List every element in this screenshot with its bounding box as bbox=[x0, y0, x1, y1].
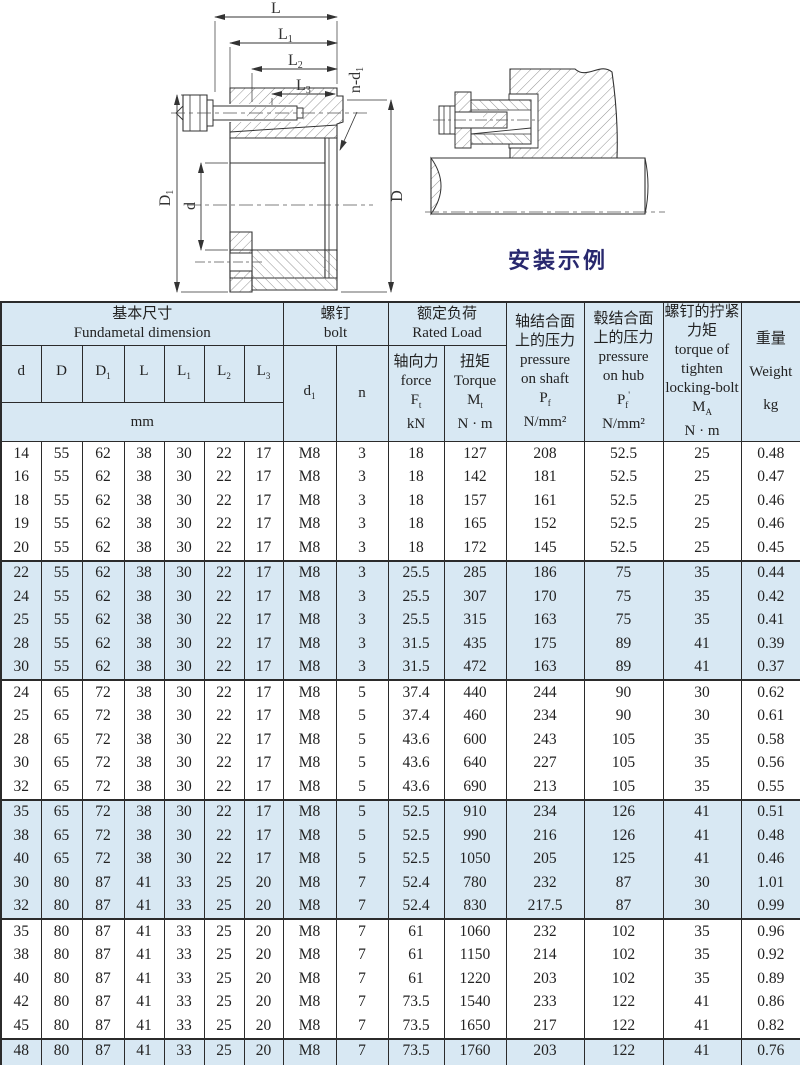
table-cell: 41 bbox=[124, 967, 164, 991]
table-cell: 0.96 bbox=[741, 919, 800, 944]
table-cell: 307 bbox=[444, 585, 506, 609]
table-cell: M8 bbox=[283, 705, 336, 729]
table-cell: 30 bbox=[164, 561, 204, 586]
table-cell: 0.41 bbox=[741, 609, 800, 633]
table-cell: 33 bbox=[164, 1014, 204, 1039]
table-cell: 55 bbox=[41, 536, 82, 561]
table-cell: 38 bbox=[124, 466, 164, 490]
table-cell: 30 bbox=[164, 848, 204, 872]
table-cell: 52.5 bbox=[388, 824, 444, 848]
table-cell: 32 bbox=[1, 775, 41, 800]
table-row: 24556238302217M8325.530717075350.42 bbox=[1, 585, 800, 609]
table-cell: 5 bbox=[336, 728, 388, 752]
table-cell: 32 bbox=[1, 895, 41, 920]
table-cell: 41 bbox=[663, 632, 741, 656]
table-cell: 25 bbox=[204, 919, 244, 944]
table-cell: 38 bbox=[124, 775, 164, 800]
table-cell: 17 bbox=[244, 680, 283, 705]
table-cell: 640 bbox=[444, 752, 506, 776]
table-cell: 55 bbox=[41, 513, 82, 537]
table-cell: 25 bbox=[663, 466, 741, 490]
table-cell: 30 bbox=[164, 513, 204, 537]
table-row: 30808741332520M8752.478023287301.01 bbox=[1, 871, 800, 895]
table-cell: 145 bbox=[506, 536, 584, 561]
table-row: 40657238302217M8552.51050205125410.46 bbox=[1, 848, 800, 872]
table-cell: 30 bbox=[164, 466, 204, 490]
table-cell: 42 bbox=[1, 991, 41, 1015]
table-cell: 38 bbox=[1, 824, 41, 848]
table-cell: 102 bbox=[584, 944, 663, 968]
table-cell: 25 bbox=[204, 895, 244, 920]
table-cell: M8 bbox=[283, 848, 336, 872]
table-cell: 1760 bbox=[444, 1039, 506, 1064]
table-cell: 22 bbox=[204, 585, 244, 609]
table-cell: 37.4 bbox=[388, 705, 444, 729]
dimension-drawing: L L1 L2 L3 n-d1 D1 bbox=[135, 0, 445, 300]
table-cell: 0.99 bbox=[741, 895, 800, 920]
table-cell: 122 bbox=[584, 1039, 663, 1064]
table-cell: 52.5 bbox=[584, 442, 663, 466]
table-cell: 62 bbox=[82, 656, 124, 681]
table-cell: 25 bbox=[204, 967, 244, 991]
table-cell: 38 bbox=[124, 585, 164, 609]
table-cell: 3 bbox=[336, 513, 388, 537]
table-cell: 30 bbox=[164, 585, 204, 609]
table-cell: 19 bbox=[1, 513, 41, 537]
col-header-L3: L3 bbox=[244, 346, 283, 403]
table-cell: 62 bbox=[82, 632, 124, 656]
table-cell: 17 bbox=[244, 466, 283, 490]
table-cell: 30 bbox=[663, 895, 741, 920]
table-cell: 35 bbox=[663, 561, 741, 586]
table-cell: 7 bbox=[336, 1014, 388, 1039]
table-row: 14556238302217M831812720852.5250.48 bbox=[1, 442, 800, 466]
table-row: 35808741332520M87611060232102350.96 bbox=[1, 919, 800, 944]
table-cell: 72 bbox=[82, 728, 124, 752]
table-cell: 65 bbox=[41, 848, 82, 872]
table-cell: 0.86 bbox=[741, 991, 800, 1015]
table-cell: 440 bbox=[444, 680, 506, 705]
table-cell: 157 bbox=[444, 489, 506, 513]
table-cell: 17 bbox=[244, 513, 283, 537]
table-cell: 35 bbox=[663, 919, 741, 944]
table-cell: 0.42 bbox=[741, 585, 800, 609]
table-cell: 22 bbox=[204, 632, 244, 656]
table-cell: 18 bbox=[388, 489, 444, 513]
table-row: 24657238302217M8537.444024490300.62 bbox=[1, 680, 800, 705]
table-cell: 205 bbox=[506, 848, 584, 872]
table-cell: 30 bbox=[164, 752, 204, 776]
table-cell: 0.82 bbox=[741, 1014, 800, 1039]
table-cell: 62 bbox=[82, 585, 124, 609]
table-cell: 52.5 bbox=[584, 466, 663, 490]
table-cell: 20 bbox=[244, 919, 283, 944]
table-cell: 5 bbox=[336, 800, 388, 825]
table-cell: 87 bbox=[82, 991, 124, 1015]
table-cell: 35 bbox=[663, 609, 741, 633]
table-cell: 80 bbox=[41, 991, 82, 1015]
table-cell: 17 bbox=[244, 609, 283, 633]
table-cell: 38 bbox=[124, 848, 164, 872]
col-header-L: L bbox=[124, 346, 164, 403]
table-cell: 203 bbox=[506, 967, 584, 991]
table-cell: 5 bbox=[336, 680, 388, 705]
table-cell: 25.5 bbox=[388, 585, 444, 609]
table-cell: 87 bbox=[82, 1039, 124, 1064]
table-cell: 35 bbox=[663, 728, 741, 752]
table-cell: 35 bbox=[1, 919, 41, 944]
table-cell: 208 bbox=[506, 442, 584, 466]
table-cell: 20 bbox=[244, 1014, 283, 1039]
table-cell: 990 bbox=[444, 824, 506, 848]
installation-drawing bbox=[425, 66, 675, 236]
table-cell: 7 bbox=[336, 919, 388, 944]
table-cell: 285 bbox=[444, 561, 506, 586]
table-cell: 24 bbox=[1, 585, 41, 609]
table-cell: 90 bbox=[584, 705, 663, 729]
table-cell: 165 bbox=[444, 513, 506, 537]
col-header-bolt-d1: d1 bbox=[283, 346, 336, 442]
table-cell: M8 bbox=[283, 895, 336, 920]
table-cell: 126 bbox=[584, 824, 663, 848]
table-cell: 33 bbox=[164, 895, 204, 920]
table-row: 18556238302217M831815716152.5250.46 bbox=[1, 489, 800, 513]
table-cell: 43.6 bbox=[388, 728, 444, 752]
table-cell: 22 bbox=[204, 728, 244, 752]
table-cell: 5 bbox=[336, 775, 388, 800]
table-cell: 73.5 bbox=[388, 991, 444, 1015]
table-cell: M8 bbox=[283, 1014, 336, 1039]
table-cell: M8 bbox=[283, 513, 336, 537]
table-cell: 38 bbox=[124, 705, 164, 729]
table-cell: 234 bbox=[506, 800, 584, 825]
table-cell: 232 bbox=[506, 871, 584, 895]
col-header-basic-dimension: 基本尺寸 Fundametal dimension bbox=[1, 302, 283, 346]
table-cell: 25 bbox=[204, 944, 244, 968]
table-cell: 41 bbox=[663, 1014, 741, 1039]
table-cell: 37.4 bbox=[388, 680, 444, 705]
table-cell: 181 bbox=[506, 466, 584, 490]
table-cell: 41 bbox=[663, 656, 741, 681]
table-cell: 22 bbox=[204, 442, 244, 466]
table-cell: 62 bbox=[82, 609, 124, 633]
table-cell: 830 bbox=[444, 895, 506, 920]
table-cell: 80 bbox=[41, 967, 82, 991]
table-row: 28657238302217M8543.6600243105350.58 bbox=[1, 728, 800, 752]
table-cell: 30 bbox=[164, 656, 204, 681]
table-cell: 25 bbox=[663, 536, 741, 561]
table-cell: 0.44 bbox=[741, 561, 800, 586]
table-cell: 102 bbox=[584, 967, 663, 991]
table-cell: 127 bbox=[444, 442, 506, 466]
table-cell: 75 bbox=[584, 561, 663, 586]
table-cell: 41 bbox=[124, 944, 164, 968]
table-cell: 35 bbox=[663, 752, 741, 776]
table-cell: 14 bbox=[1, 442, 41, 466]
table-cell: 41 bbox=[124, 919, 164, 944]
table-cell: 17 bbox=[244, 632, 283, 656]
unit-mm-cell: mm bbox=[1, 403, 283, 442]
table-cell: 163 bbox=[506, 609, 584, 633]
table-cell: 152 bbox=[506, 513, 584, 537]
table-cell: 90 bbox=[584, 680, 663, 705]
col-header-pressure-on-hub: 毂结合面 上的压力 pressure on hub Pf' N/mm² bbox=[584, 302, 663, 442]
table-cell: 780 bbox=[444, 871, 506, 895]
table-cell: 105 bbox=[584, 728, 663, 752]
table-row: 42808741332520M8773.51540233122410.86 bbox=[1, 991, 800, 1015]
table-cell: 80 bbox=[41, 1014, 82, 1039]
table-row: 19556238302217M831816515252.5250.46 bbox=[1, 513, 800, 537]
table-cell: 18 bbox=[388, 513, 444, 537]
table-cell: 62 bbox=[82, 489, 124, 513]
table-cell: 41 bbox=[124, 1039, 164, 1064]
table-cell: 80 bbox=[41, 944, 82, 968]
table-cell: 24 bbox=[1, 680, 41, 705]
table-cell: 38 bbox=[124, 489, 164, 513]
table-cell: 65 bbox=[41, 728, 82, 752]
table-cell: 72 bbox=[82, 680, 124, 705]
table-cell: 38 bbox=[124, 561, 164, 586]
table-cell: 41 bbox=[124, 1014, 164, 1039]
table-cell: 3 bbox=[336, 561, 388, 586]
table-cell: 435 bbox=[444, 632, 506, 656]
table-cell: 35 bbox=[663, 967, 741, 991]
table-cell: 62 bbox=[82, 442, 124, 466]
table-cell: M8 bbox=[283, 466, 336, 490]
table-cell: 73.5 bbox=[388, 1014, 444, 1039]
table-cell: 7 bbox=[336, 967, 388, 991]
table-cell: 30 bbox=[164, 536, 204, 561]
table-cell: 38 bbox=[124, 824, 164, 848]
table-cell: 0.76 bbox=[741, 1039, 800, 1064]
table-cell: 0.48 bbox=[741, 824, 800, 848]
table-cell: 232 bbox=[506, 919, 584, 944]
table-cell: 125 bbox=[584, 848, 663, 872]
col-header-D: D bbox=[41, 346, 82, 403]
table-cell: 0.92 bbox=[741, 944, 800, 968]
table-cell: 22 bbox=[204, 752, 244, 776]
table-cell: 0.39 bbox=[741, 632, 800, 656]
table-cell: 25 bbox=[204, 1039, 244, 1064]
table-cell: 5 bbox=[336, 752, 388, 776]
table-cell: 17 bbox=[244, 728, 283, 752]
table-cell: M8 bbox=[283, 632, 336, 656]
table-cell: 55 bbox=[41, 632, 82, 656]
table-cell: 17 bbox=[244, 561, 283, 586]
table-cell: 55 bbox=[41, 561, 82, 586]
table-cell: 25.5 bbox=[388, 561, 444, 586]
table-cell: 52.5 bbox=[584, 489, 663, 513]
table-cell: 43.6 bbox=[388, 752, 444, 776]
table-cell: 30 bbox=[164, 800, 204, 825]
table-cell: 460 bbox=[444, 705, 506, 729]
table-cell: 72 bbox=[82, 848, 124, 872]
table-cell: 7 bbox=[336, 895, 388, 920]
table-row: 25657238302217M8537.446023490300.61 bbox=[1, 705, 800, 729]
table-cell: 102 bbox=[584, 919, 663, 944]
table-cell: 203 bbox=[506, 1039, 584, 1064]
table-cell: 35 bbox=[663, 944, 741, 968]
shaft-icon bbox=[425, 158, 665, 214]
table-cell: 1650 bbox=[444, 1014, 506, 1039]
table-cell: 3 bbox=[336, 442, 388, 466]
page: L L1 L2 L3 n-d1 D1 bbox=[0, 0, 800, 1065]
table-cell: M8 bbox=[283, 561, 336, 586]
table-cell: 62 bbox=[82, 466, 124, 490]
table-header: 基本尺寸 Fundametal dimension 螺钉 bolt 额定负荷 R… bbox=[1, 302, 800, 442]
table-cell: 55 bbox=[41, 466, 82, 490]
table-cell: 20 bbox=[244, 991, 283, 1015]
table-cell: 216 bbox=[506, 824, 584, 848]
table-cell: 25 bbox=[1, 705, 41, 729]
table-cell: 315 bbox=[444, 609, 506, 633]
table-cell: 30 bbox=[164, 705, 204, 729]
table-cell: 142 bbox=[444, 466, 506, 490]
table-cell: 472 bbox=[444, 656, 506, 681]
table-row: 40808741332520M87611220203102350.89 bbox=[1, 967, 800, 991]
table-cell: 1540 bbox=[444, 991, 506, 1015]
table-cell: 3 bbox=[336, 489, 388, 513]
table-cell: 18 bbox=[1, 489, 41, 513]
table-cell: 33 bbox=[164, 944, 204, 968]
table-cell: M8 bbox=[283, 919, 336, 944]
dim-label-L: L bbox=[271, 0, 281, 17]
table-cell: 62 bbox=[82, 561, 124, 586]
table-cell: 38 bbox=[1, 944, 41, 968]
dim-label-D1: D1 bbox=[157, 190, 176, 207]
table-cell: 105 bbox=[584, 752, 663, 776]
table-cell: 122 bbox=[584, 1014, 663, 1039]
col-header-tightening-torque: 螺钉的拧紧 力矩 torque of tighten locking-bolt … bbox=[663, 302, 741, 442]
table-row: 20556238302217M831817214552.5250.45 bbox=[1, 536, 800, 561]
table-cell: 38 bbox=[124, 632, 164, 656]
table-cell: 5 bbox=[336, 848, 388, 872]
table-cell: 3 bbox=[336, 632, 388, 656]
table-cell: 30 bbox=[663, 680, 741, 705]
table-cell: 105 bbox=[584, 775, 663, 800]
table-cell: 17 bbox=[244, 705, 283, 729]
table-cell: 30 bbox=[164, 489, 204, 513]
table-cell: 48 bbox=[1, 1039, 41, 1064]
table-cell: 7 bbox=[336, 991, 388, 1015]
table-row: 28556238302217M8331.543517589410.39 bbox=[1, 632, 800, 656]
table-cell: 161 bbox=[506, 489, 584, 513]
table-cell: 87 bbox=[82, 967, 124, 991]
table-cell: 33 bbox=[164, 1039, 204, 1064]
table-cell: 910 bbox=[444, 800, 506, 825]
table-cell: 75 bbox=[584, 609, 663, 633]
table-cell: 35 bbox=[1, 800, 41, 825]
table-cell: 41 bbox=[663, 1039, 741, 1064]
table-cell: 72 bbox=[82, 824, 124, 848]
table-cell: 0.56 bbox=[741, 752, 800, 776]
col-header-pressure-on-shaft: 轴结合面 上的压力 pressure on shaft Pf N/mm² bbox=[506, 302, 584, 442]
table-cell: 52.5 bbox=[388, 800, 444, 825]
table-row: 30657238302217M8543.6640227105350.56 bbox=[1, 752, 800, 776]
table-cell: 33 bbox=[164, 871, 204, 895]
table-row: 32808741332520M8752.4830217.587300.99 bbox=[1, 895, 800, 920]
table-cell: 41 bbox=[663, 824, 741, 848]
table-cell: 20 bbox=[244, 895, 283, 920]
table-cell: M8 bbox=[283, 442, 336, 466]
table-cell: M8 bbox=[283, 871, 336, 895]
table-cell: 87 bbox=[82, 895, 124, 920]
table-cell: 170 bbox=[506, 585, 584, 609]
table-cell: 126 bbox=[584, 800, 663, 825]
table-cell: 25 bbox=[663, 442, 741, 466]
table-cell: 17 bbox=[244, 824, 283, 848]
table-cell: 30 bbox=[164, 442, 204, 466]
table-cell: 43.6 bbox=[388, 775, 444, 800]
table-cell: 65 bbox=[41, 705, 82, 729]
table-cell: 22 bbox=[204, 656, 244, 681]
table-cell: 80 bbox=[41, 871, 82, 895]
table-row: 48808741332520M8773.51760203122410.76 bbox=[1, 1039, 800, 1064]
table-body: 14556238302217M831812720852.5250.4816556… bbox=[1, 442, 800, 1065]
table-cell: 30 bbox=[164, 775, 204, 800]
table-cell: 72 bbox=[82, 752, 124, 776]
table-cell: 80 bbox=[41, 1039, 82, 1064]
table-cell: M8 bbox=[283, 656, 336, 681]
table-cell: 33 bbox=[164, 967, 204, 991]
table-cell: 38 bbox=[124, 536, 164, 561]
table-cell: 52.5 bbox=[584, 536, 663, 561]
table-cell: 30 bbox=[663, 871, 741, 895]
table-cell: M8 bbox=[283, 752, 336, 776]
table-cell: 0.58 bbox=[741, 728, 800, 752]
table-cell: 244 bbox=[506, 680, 584, 705]
table-cell: 62 bbox=[82, 513, 124, 537]
dim-label-L3: L3 bbox=[296, 77, 311, 96]
table-cell: 18 bbox=[388, 466, 444, 490]
table-cell: 20 bbox=[244, 967, 283, 991]
table-cell: 41 bbox=[663, 848, 741, 872]
table-row: 30556238302217M8331.547216389410.37 bbox=[1, 656, 800, 681]
table-cell: M8 bbox=[283, 991, 336, 1015]
table-cell: 217 bbox=[506, 1014, 584, 1039]
table-cell: 22 bbox=[204, 561, 244, 586]
table-row: 32657238302217M8543.6690213105350.55 bbox=[1, 775, 800, 800]
table-cell: 38 bbox=[124, 680, 164, 705]
table-cell: 22 bbox=[204, 705, 244, 729]
table-cell: 25 bbox=[663, 513, 741, 537]
table-cell: 38 bbox=[124, 656, 164, 681]
table-cell: 61 bbox=[388, 967, 444, 991]
table-cell: 22 bbox=[204, 680, 244, 705]
table-cell: 55 bbox=[41, 609, 82, 633]
table-cell: 7 bbox=[336, 1039, 388, 1064]
dim-label-L2: L2 bbox=[288, 52, 303, 71]
table-cell: M8 bbox=[283, 800, 336, 825]
col-header-bolt: 螺钉 bolt bbox=[283, 302, 388, 346]
table-cell: 31.5 bbox=[388, 632, 444, 656]
table-cell: 22 bbox=[204, 466, 244, 490]
table-cell: 25.5 bbox=[388, 609, 444, 633]
table-cell: 52.4 bbox=[388, 895, 444, 920]
dim-label-L1: L1 bbox=[278, 26, 293, 45]
table-cell: 234 bbox=[506, 705, 584, 729]
table-cell: 80 bbox=[41, 919, 82, 944]
table-cell: 7 bbox=[336, 871, 388, 895]
table-cell: M8 bbox=[283, 680, 336, 705]
table-cell: 30 bbox=[164, 728, 204, 752]
table-cell: 38 bbox=[124, 752, 164, 776]
table-cell: 3 bbox=[336, 536, 388, 561]
col-header-D1: D1 bbox=[82, 346, 124, 403]
table-cell: 55 bbox=[41, 656, 82, 681]
table-cell: 25 bbox=[204, 991, 244, 1015]
table-cell: 233 bbox=[506, 991, 584, 1015]
